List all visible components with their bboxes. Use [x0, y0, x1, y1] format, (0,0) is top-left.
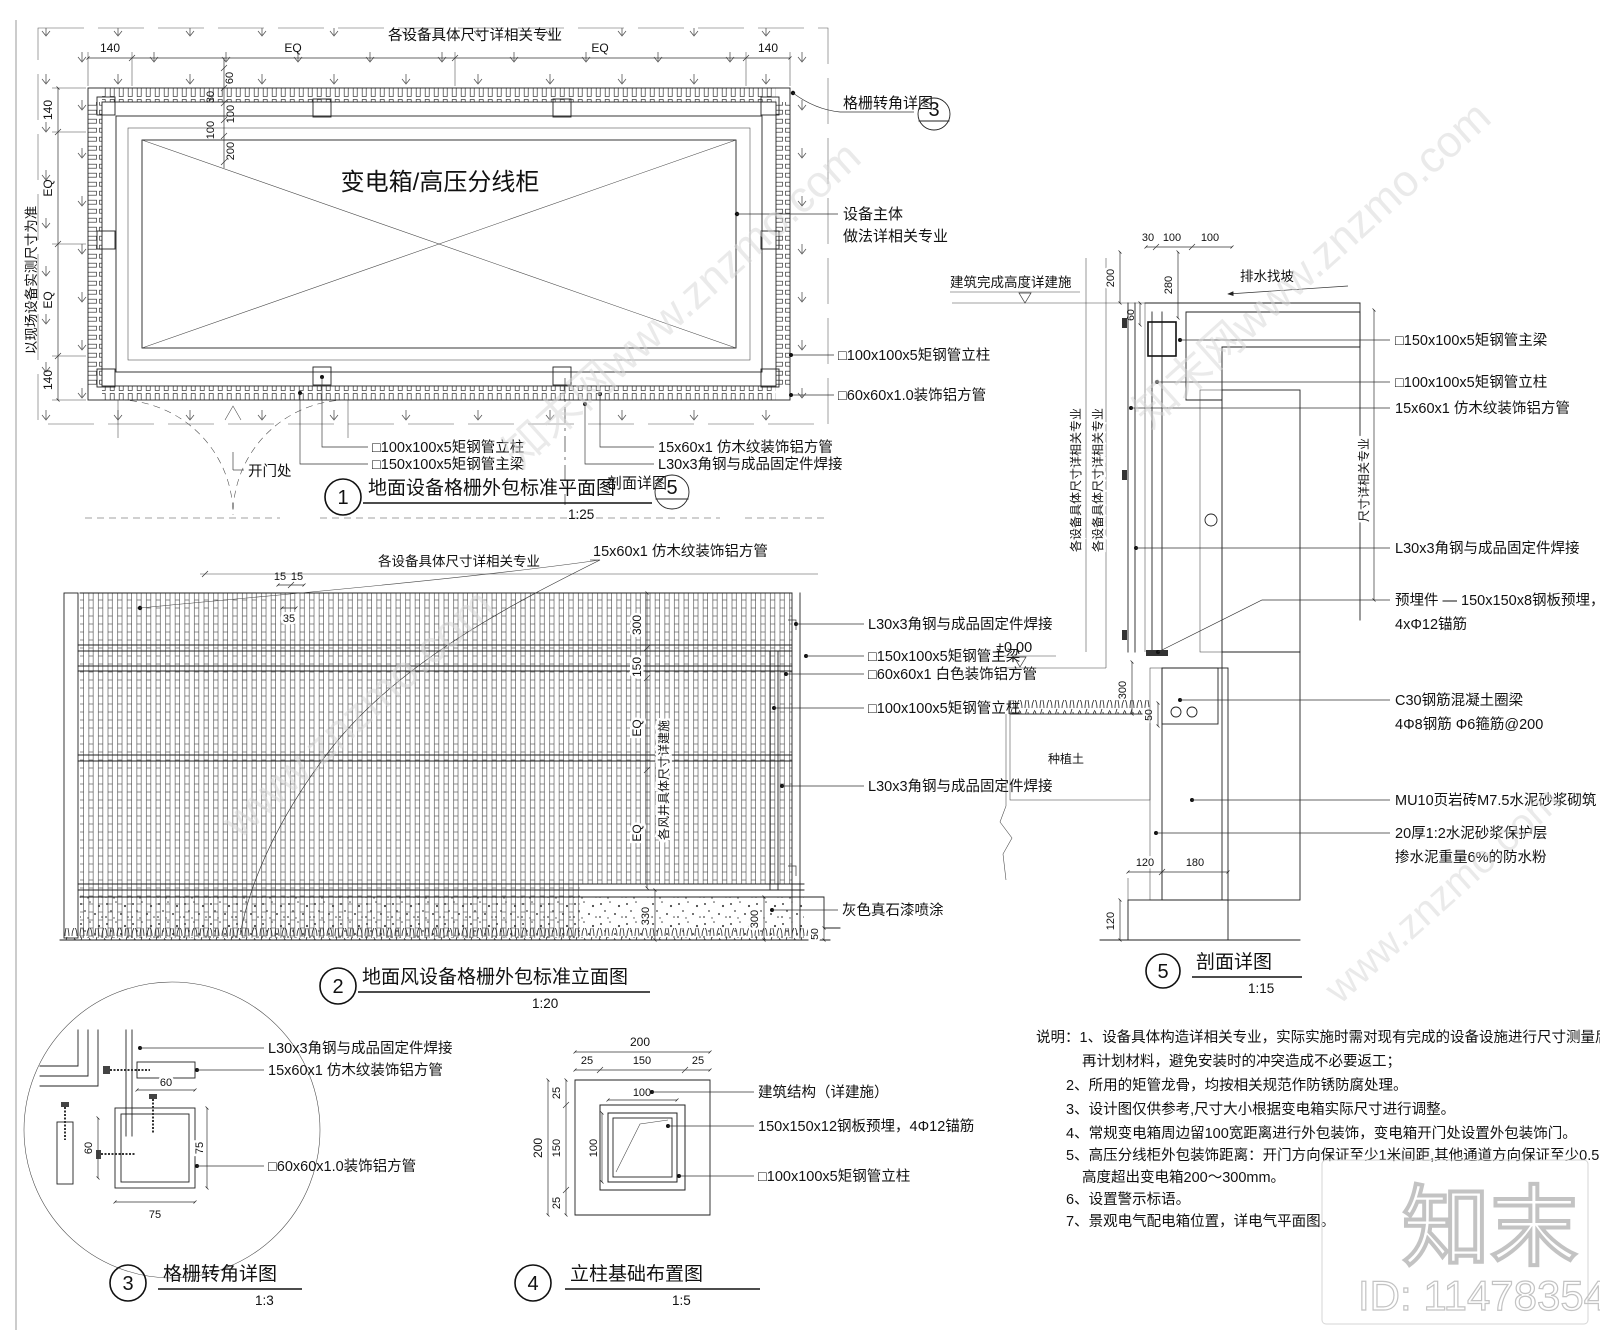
dim: 200	[1105, 269, 1117, 287]
dim: 50	[809, 928, 821, 940]
detail-title: 格栅转角详图	[163, 1263, 277, 1285]
label: □60x60x1.0装饰铝方管	[838, 387, 986, 404]
label: 15x60x1 仿木纹装饰铝方管	[658, 439, 833, 456]
section-labels: □150x100x5矩钢管主梁 □100x100x5矩钢管立柱 15x60x1 …	[1129, 332, 1600, 866]
label: L30x3角钢与成品固定件焊接	[658, 456, 843, 473]
section-vnote-1: 各设备具体尺寸详相关专业	[1068, 408, 1083, 552]
detail-4-foundation: 200 25 150 25 200 25 150 25 100 100 建筑结构…	[515, 1035, 974, 1308]
dim: 30	[205, 91, 217, 103]
plan-side-note: 以现场设备实测尺寸为准	[23, 206, 39, 355]
label: □100x100x5矩钢管立柱	[758, 1168, 910, 1185]
dim: 15	[291, 571, 303, 583]
dim: 100	[205, 121, 217, 139]
elev-wood-label: 15x60x1 仿木纹装饰铝方管	[593, 543, 768, 560]
note-line: 高度超出变电箱200～300mm。	[1082, 1169, 1285, 1186]
detail-number: 5	[1157, 961, 1168, 983]
dim: 300	[749, 910, 761, 928]
section-height-note: 建筑完成高度详建施	[950, 274, 1072, 290]
dim: 75	[194, 1142, 206, 1154]
dim: 330	[640, 907, 652, 925]
section-substructure: 120 180 120	[1100, 652, 1300, 940]
dim: 15	[274, 571, 286, 583]
detail-number: 1	[337, 487, 348, 509]
dim: 200	[531, 1138, 545, 1158]
section-top-dims: 30 100 100 200 280 60	[1105, 232, 1232, 325]
foundation-dims: 200 25 150 25 200 25 150 25 100 100	[531, 1035, 710, 1215]
section-soil-label: 种植土	[1048, 751, 1084, 766]
dim: 150	[551, 1139, 563, 1157]
detail-circle	[24, 982, 320, 1278]
detail-5-section: 建筑完成高度详建施 各设备具体尺寸详相关专业 各设备具体尺寸详相关专业 30 1…	[950, 232, 1600, 996]
dim: 120	[1136, 857, 1154, 869]
label: 灰色真石漆喷涂	[842, 901, 944, 919]
detail-number: 3	[122, 1273, 133, 1295]
dim: 300	[1117, 681, 1129, 699]
label: □100x100x5矩钢管立柱	[868, 700, 1020, 717]
label: 建筑结构（详建施）	[758, 1084, 889, 1101]
watermark-diagonal: www.znzmo.com	[1316, 778, 1569, 1012]
cad-canvas: 变电箱/高压分线柜 开门处 140 EQ EQ 140 60 30 100 10…	[0, 0, 1600, 1336]
dim: 60	[160, 1077, 172, 1089]
label: 4xΦ12锚筋	[1395, 616, 1467, 633]
detail-number: 4	[527, 1273, 538, 1295]
dim: 50	[1143, 709, 1155, 721]
note-line: 3、设计图仅供参考,尺寸大小根据变电箱实际尺寸进行调整。	[1066, 1101, 1455, 1118]
label: 设备主体	[843, 206, 903, 223]
note-line: 说明：1、设备具体构造详相关专业，实际实施时需对现有完成的设备设施进行尺寸测量后…	[1036, 1029, 1600, 1046]
label: 4Φ8钢筋 Φ6箍筋@200	[1395, 716, 1543, 733]
elev-slats-right	[580, 593, 792, 884]
watermark-id: ID: 1147835468	[1358, 1272, 1600, 1319]
note-line: 再计划材料，避免安装时的冲突造成不必要返工；	[1082, 1053, 1401, 1070]
detail-title: 地面设备格栅外包标准平面图	[368, 477, 615, 499]
label: 15x60x1 仿木纹装饰铝方管	[1395, 400, 1570, 417]
label: □60x60x1 白色装饰铝方管	[868, 666, 1037, 683]
dim: EQ	[591, 41, 608, 55]
detail-2-elevation: 各设备具体尺寸详相关专业 15 15 35 15x60x1 仿木纹装饰铝方管	[60, 543, 1053, 1011]
elev-top-note: 各设备具体尺寸详相关专业	[378, 553, 540, 569]
label: L30x3角钢与成品固定件焊接	[268, 1040, 453, 1057]
dim: 25	[551, 1197, 563, 1209]
callout-number: 5	[666, 477, 677, 499]
dim: 120	[1105, 912, 1117, 930]
dim: EQ	[284, 41, 301, 55]
detail-number: 2	[332, 976, 343, 998]
plan-door-label: 开门处	[248, 463, 292, 480]
dim: 140	[100, 41, 120, 55]
dim: 75	[149, 1209, 161, 1221]
section-vnote-2: 各设备具体尺寸详相关专业	[1090, 408, 1105, 552]
dim: 140	[758, 41, 778, 55]
drawing-sheet: 变电箱/高压分线柜 开门处 140 EQ EQ 140 60 30 100 10…	[0, 0, 1600, 1336]
callout-number: 3	[928, 99, 939, 121]
dim: 140	[41, 100, 55, 120]
dim: 300	[630, 615, 644, 635]
plan-top-note: 各设备具体尺寸详相关专业	[388, 27, 562, 44]
dim: 150	[630, 657, 644, 677]
note-line: 4、常规变电箱周边留100宽距离进行外包装饰，变电箱开门处设置外包装饰门。	[1066, 1125, 1577, 1142]
foundation-labels: 建筑结构（详建施） 150x150x12钢板预埋，4Φ12锚筋 □100x100…	[650, 1084, 974, 1185]
corner-dims: 60 75 60 75	[83, 1077, 207, 1221]
label: □60x60x1.0装饰铝方管	[268, 1158, 416, 1175]
dim: 25	[581, 1055, 593, 1067]
label: MU10页岩砖M7.5水泥砂浆砌筑	[1395, 791, 1597, 809]
detail-scale: 1:15	[1248, 981, 1274, 996]
label: □150x100x5矩钢管主梁	[372, 456, 524, 473]
watermark-logo: 知末	[1402, 1178, 1578, 1277]
dim: 25	[551, 1087, 563, 1099]
elev-end-post	[64, 593, 78, 938]
dim: 150	[633, 1055, 651, 1067]
elev-title: 2 地面风设备格栅外包标准立面图 1:20	[320, 966, 650, 1011]
label: 15x60x1 仿木纹装饰铝方管	[268, 1062, 443, 1079]
section-vnote-3: 尺寸详相关专业	[1356, 438, 1371, 522]
dim: 100	[225, 105, 237, 123]
callout-label: 格栅转角详图	[843, 95, 933, 112]
note-line: 2、所用的矩管龙骨，均按相关规范作防锈防腐处理。	[1066, 1076, 1408, 1094]
label: L30x3角钢与成品固定件焊接	[1395, 540, 1580, 557]
plan-equipment-label: 变电箱/高压分线柜	[341, 169, 540, 196]
label: □150x100x5矩钢管主梁	[1395, 332, 1547, 349]
label: 做法详相关专业	[843, 228, 948, 245]
dim: 35	[283, 613, 295, 625]
detail-title: 立柱基础布置图	[570, 1263, 703, 1285]
detail-scale: 1:3	[255, 1293, 274, 1308]
dim: 30	[1142, 232, 1154, 244]
corner-geometry	[40, 1030, 195, 1188]
label: □100x100x5矩钢管立柱	[838, 347, 990, 364]
label: □100x100x5矩钢管立柱	[1395, 374, 1547, 391]
plan-title: 1 地面设备格栅外包标准平面图 1:25	[325, 477, 652, 522]
detail-scale: 1:25	[568, 507, 594, 522]
detail-3-corner: 60 75 60 75 L30x3角钢与成品固定件焊接 15x60x1 仿木纹装…	[24, 982, 453, 1308]
section-title: 5 剖面详图 1:15	[1146, 951, 1302, 996]
dim: 280	[1163, 276, 1175, 294]
note-line: 6、设置警示标语。	[1066, 1191, 1190, 1208]
detail-title: 剖面详图	[1196, 951, 1272, 973]
section-zero-level: ±0.00	[996, 640, 1032, 656]
dim: 25	[692, 1055, 704, 1067]
dim: 180	[1186, 857, 1204, 869]
dim: 60	[83, 1142, 95, 1154]
detail-scale: 1:20	[532, 996, 558, 1011]
dim: 60	[224, 72, 236, 84]
label: C30钢筋混凝土圈梁	[1395, 692, 1523, 709]
dim: 100	[1163, 232, 1181, 244]
dim: 200	[225, 142, 237, 160]
dim: 200	[630, 1035, 650, 1049]
corner-title: 3 格栅转角详图 1:3	[110, 1263, 302, 1308]
elev-grass	[64, 928, 808, 940]
callout-label: 剖面详图	[607, 475, 667, 492]
dim: 100	[1201, 232, 1219, 244]
dim: EQ	[630, 824, 644, 841]
corner-labels: L30x3角钢与成品固定件焊接 15x60x1 仿木纹装饰铝方管 □60x60x…	[138, 1040, 453, 1175]
label: 150x150x12钢板预埋，4Φ12锚筋	[758, 1117, 974, 1135]
dim: EQ	[41, 179, 55, 196]
dim: 100	[633, 1087, 651, 1099]
dim: EQ	[41, 291, 55, 308]
label: L30x3角钢与成品固定件焊接	[868, 778, 1053, 795]
detail-scale: 1:5	[672, 1293, 691, 1308]
dim: 100	[588, 1139, 600, 1157]
label: L30x3角钢与成品固定件焊接	[868, 616, 1053, 633]
note-line: 7、景观电气配电箱位置，详电气平面图。	[1066, 1213, 1335, 1230]
dim: EQ	[630, 719, 644, 736]
label: 预埋件 — 150x150x8钢板预埋，	[1395, 591, 1600, 609]
dim: 140	[41, 370, 55, 390]
note-line: 5、高压分线柜外包装饰距离：开门方向保证至少1米间距,其他通道方向保证至少0.5…	[1066, 1147, 1600, 1164]
elev-vent-note: 各风井具体尺寸详建施	[656, 720, 671, 840]
foundation-title: 4 立柱基础布置图 1:5	[515, 1263, 760, 1308]
detail-title: 地面风设备格栅外包标准立面图	[362, 966, 628, 988]
